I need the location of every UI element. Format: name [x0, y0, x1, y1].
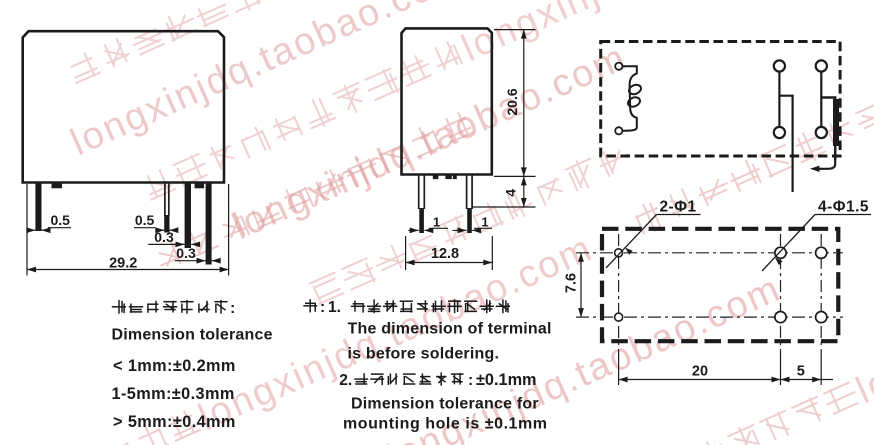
svg-text:0.5: 0.5: [50, 212, 70, 228]
svg-text:2.: 2.: [339, 372, 352, 389]
svg-text:5: 5: [797, 364, 805, 380]
svg-text:±0.1mm: ±0.1mm: [476, 371, 537, 389]
svg-text:20.6: 20.6: [504, 88, 520, 115]
svg-text:12.8: 12.8: [431, 246, 459, 262]
svg-text:0.3: 0.3: [154, 229, 174, 245]
svg-text:1-5mm:±0.3mm: 1-5mm:±0.3mm: [112, 385, 235, 403]
svg-text:0.5: 0.5: [135, 212, 155, 228]
svg-text:Dimension tolerance: Dimension tolerance: [112, 326, 273, 343]
svg-text:1: 1: [433, 215, 440, 230]
svg-text:The dimension of terminal: The dimension of terminal: [348, 321, 552, 338]
svg-text::: :: [468, 372, 473, 389]
svg-text:Dimension tolerance for: Dimension tolerance for: [351, 396, 539, 413]
svg-text:< 1mm:±0.2mm: < 1mm:±0.2mm: [113, 357, 236, 375]
svg-text:is before soldering.: is before soldering.: [348, 345, 500, 362]
svg-text:7.6: 7.6: [564, 273, 580, 293]
svg-text:> 5mm:±0.4mm: > 5mm:±0.4mm: [113, 413, 236, 431]
svg-text:4: 4: [503, 189, 519, 197]
svg-text:longxinjdq.taobao.com: longxinjdq.taobao.com: [456, 0, 863, 70]
svg-text::: :: [230, 300, 235, 317]
svg-text:1: 1: [481, 215, 488, 230]
svg-text:2-Φ1: 2-Φ1: [659, 198, 696, 215]
svg-text:mounting hole is ±0.1mm: mounting hole is ±0.1mm: [343, 415, 548, 432]
svg-text:1.: 1.: [328, 299, 341, 316]
svg-text::: :: [320, 299, 325, 316]
svg-text:longxinjdq.taobao.com: longxinjdq.taobao.com: [850, 200, 874, 412]
svg-text:20: 20: [692, 364, 708, 380]
svg-text:0.3: 0.3: [176, 245, 196, 261]
svg-text:29.2: 29.2: [109, 255, 137, 271]
svg-text:4-Φ1.5: 4-Φ1.5: [818, 198, 869, 215]
